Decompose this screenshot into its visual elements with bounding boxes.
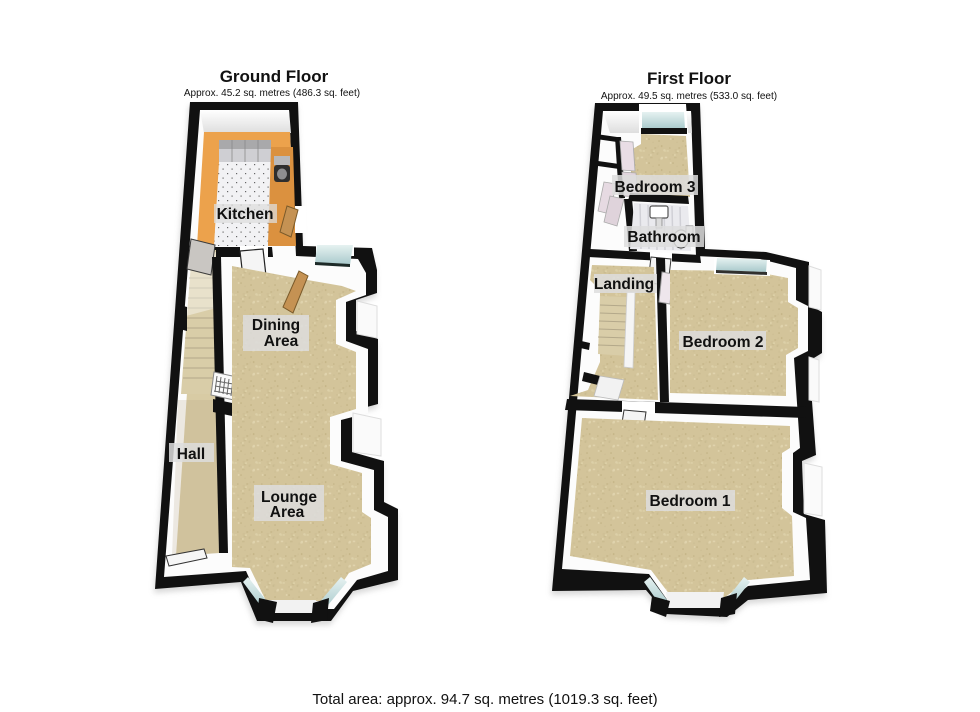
svg-text:Bedroom 2: Bedroom 2: [683, 334, 764, 351]
svg-text:Ground Floor: Ground Floor: [220, 67, 329, 86]
svg-text:Approx. 49.5 sq. metres (533.0: Approx. 49.5 sq. metres (533.0 sq. feet): [601, 91, 777, 102]
svg-text:Area: Area: [270, 504, 305, 521]
svg-text:Landing: Landing: [594, 276, 654, 293]
svg-text:Approx. 45.2 sq. metres (486.3: Approx. 45.2 sq. metres (486.3 sq. feet): [184, 88, 360, 99]
svg-text:Bedroom 1: Bedroom 1: [650, 493, 731, 510]
svg-text:Dining: Dining: [252, 317, 300, 334]
svg-text:First Floor: First Floor: [647, 69, 731, 88]
svg-text:Bedroom 3: Bedroom 3: [615, 179, 696, 196]
svg-text:Area: Area: [264, 333, 299, 350]
svg-text:Kitchen: Kitchen: [217, 206, 274, 223]
svg-text:Hall: Hall: [177, 446, 205, 463]
svg-text:Bathroom: Bathroom: [627, 229, 700, 246]
svg-text:Total area: approx. 94.7 sq. m: Total area: approx. 94.7 sq. metres (101…: [312, 691, 657, 708]
